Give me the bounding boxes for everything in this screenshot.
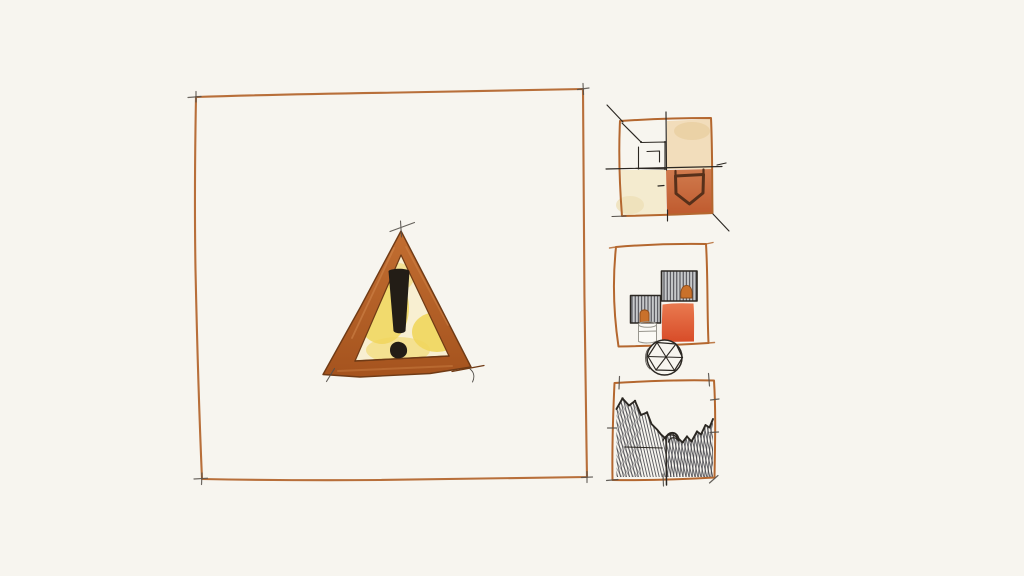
thumbnail-panel-3 [607, 374, 720, 487]
orange-accent-b [640, 310, 649, 323]
main-panel [188, 84, 593, 485]
spiral-square-icon [638, 141, 667, 170]
wash-peach-deep [674, 122, 710, 140]
thumb1-corner-graphite [612, 216, 626, 217]
thumbnail-panel-1 [606, 105, 729, 231]
valley-vertical-line [666, 437, 667, 485]
sketch-canvas [0, 0, 1024, 576]
orange-accent-a [681, 285, 692, 298]
red-orange-block [662, 303, 694, 342]
warning-triangle-icon [323, 221, 484, 382]
cylinder-sketch [639, 322, 657, 343]
thumbnail-panel-2 [610, 243, 715, 376]
hatched-square-a [662, 271, 698, 301]
hatched-square-b [631, 296, 661, 324]
geodesic-sphere-icon [646, 340, 683, 375]
mountain-hatch-sketch [617, 397, 714, 485]
sketch-page [0, 0, 1024, 576]
